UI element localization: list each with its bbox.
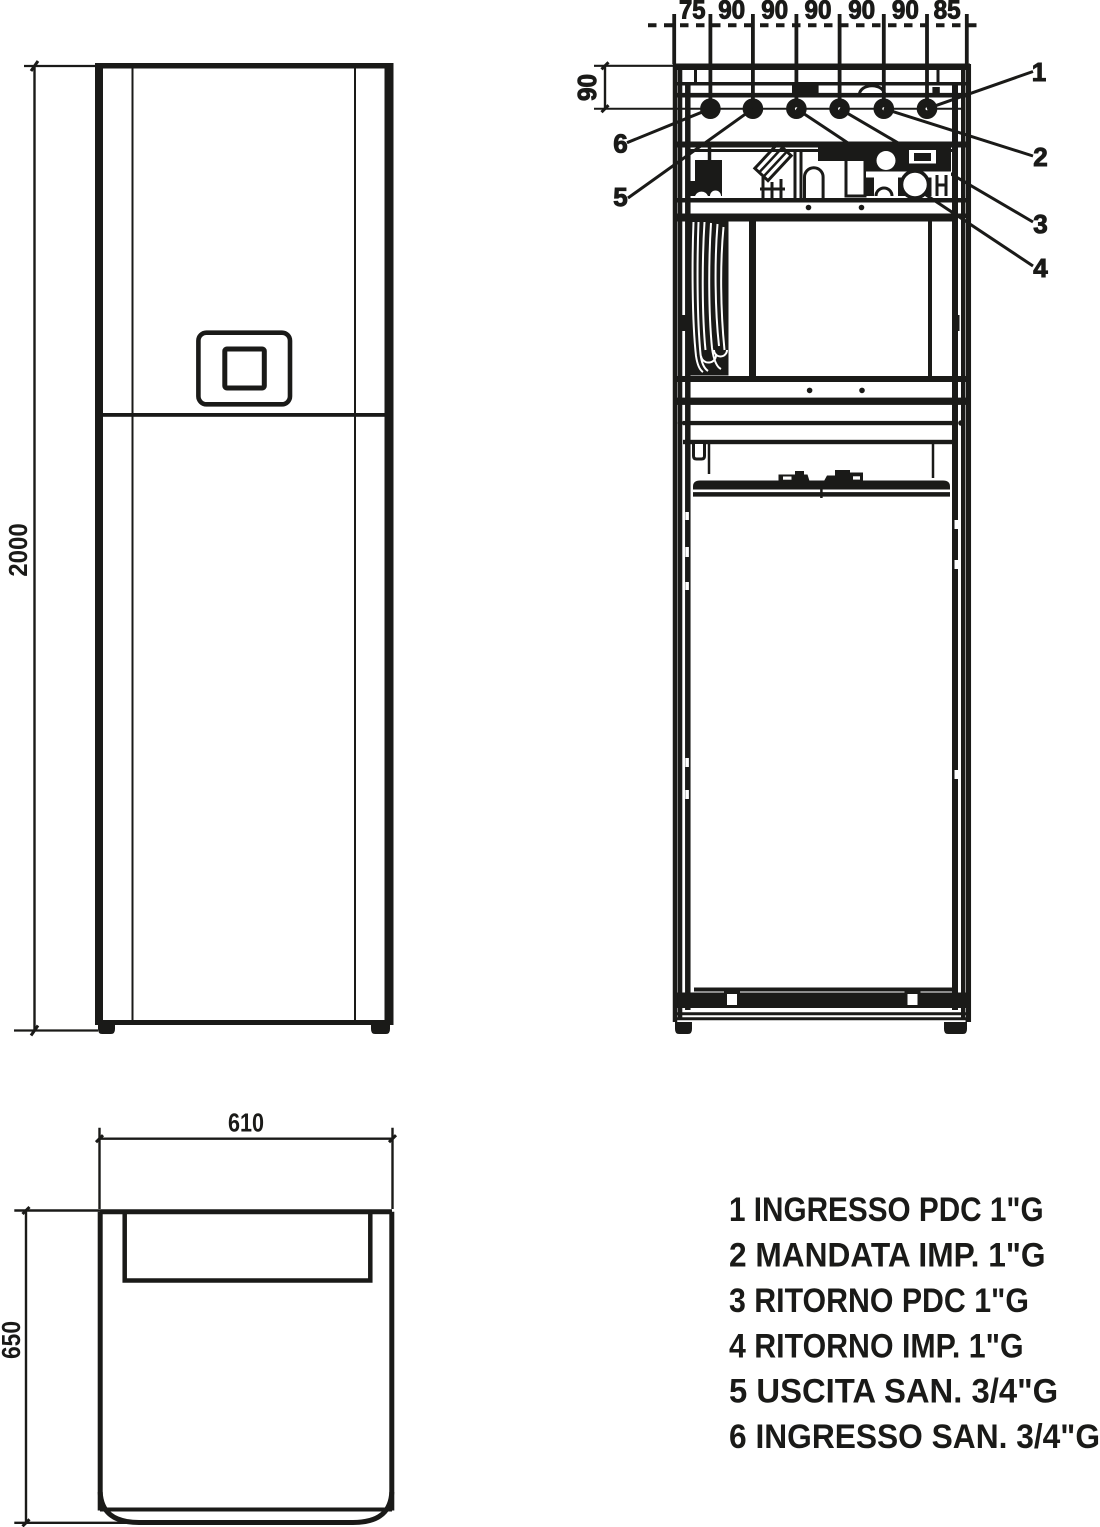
svg-text:3: 3: [1033, 209, 1047, 239]
svg-text:90: 90: [718, 0, 745, 25]
svg-text:6: 6: [613, 129, 627, 159]
svg-text:3 RITORNO PDC 1"G: 3 RITORNO PDC 1"G: [729, 1282, 1029, 1320]
svg-text:90: 90: [761, 0, 788, 25]
svg-text:2: 2: [1033, 142, 1047, 172]
svg-text:2000: 2000: [3, 523, 33, 577]
svg-text:90: 90: [805, 0, 832, 25]
svg-text:5: 5: [613, 182, 627, 212]
svg-text:1 INGRESSO PDC 1"G: 1 INGRESSO PDC 1"G: [729, 1191, 1044, 1229]
svg-text:85: 85: [934, 0, 961, 25]
svg-text:75: 75: [679, 0, 706, 25]
svg-text:1: 1: [1032, 57, 1046, 87]
svg-text:90: 90: [848, 0, 875, 25]
svg-text:4 RITORNO IMP. 1"G: 4 RITORNO IMP. 1"G: [729, 1327, 1024, 1365]
svg-text:650: 650: [0, 1321, 26, 1359]
svg-text:90: 90: [892, 0, 919, 25]
svg-text:90: 90: [572, 74, 602, 101]
svg-text:610: 610: [228, 1108, 264, 1138]
svg-text:5 USCITA SAN. 3/4"G: 5 USCITA SAN. 3/4"G: [729, 1373, 1058, 1411]
svg-text:6 INGRESSO SAN. 3/4"G: 6 INGRESSO SAN. 3/4"G: [729, 1418, 1100, 1456]
svg-text:2 MANDATA IMP. 1"G: 2 MANDATA IMP. 1"G: [729, 1236, 1046, 1274]
svg-text:4: 4: [1033, 253, 1048, 283]
